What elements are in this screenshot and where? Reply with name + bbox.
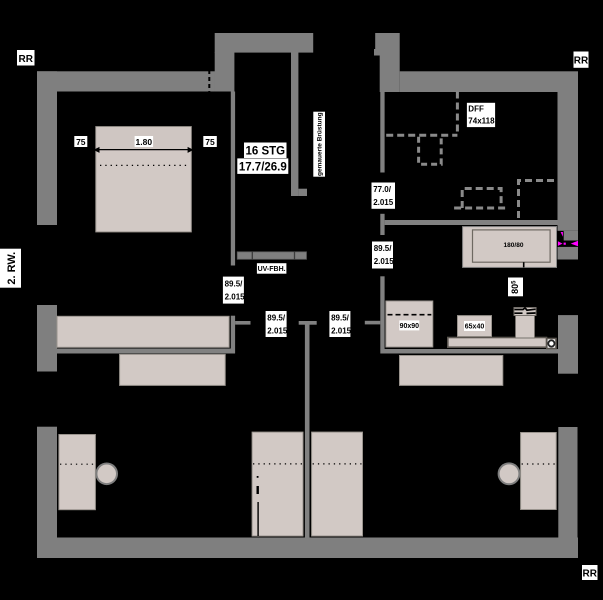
svg-text:77.0/: 77.0/ <box>373 185 392 194</box>
svg-text:65x40: 65x40 <box>465 324 485 331</box>
svg-text:gemauerte Brüstung: gemauerte Brüstung <box>317 112 324 176</box>
svg-text:2. RW.: 2. RW. <box>6 252 18 285</box>
svg-text:89.5/: 89.5/ <box>225 279 244 288</box>
svg-text:90x90: 90x90 <box>400 323 420 330</box>
svg-text:89.5/: 89.5/ <box>267 314 286 323</box>
svg-text:17.7/26.9: 17.7/26.9 <box>239 161 287 173</box>
svg-text:75: 75 <box>205 137 215 147</box>
svg-text:2.015: 2.015 <box>267 327 288 336</box>
svg-text:RR: RR <box>574 56 589 67</box>
svg-text:74x118: 74x118 <box>468 116 495 125</box>
svg-text:RR: RR <box>582 569 597 580</box>
svg-text:89.5/: 89.5/ <box>374 244 393 253</box>
svg-text:2.015: 2.015 <box>374 257 395 266</box>
svg-text:2.015: 2.015 <box>331 327 352 336</box>
svg-text:DFF: DFF <box>468 104 484 113</box>
svg-text:2.015: 2.015 <box>373 198 394 207</box>
svg-text:16 STG: 16 STG <box>245 146 285 158</box>
svg-text:1.80: 1.80 <box>136 137 153 147</box>
svg-text:UV-FBH.: UV-FBH. <box>258 266 286 273</box>
svg-text:RR: RR <box>18 54 33 65</box>
svg-text:75: 75 <box>76 137 86 147</box>
svg-text:89.5/: 89.5/ <box>331 314 350 323</box>
svg-text:2.015: 2.015 <box>225 292 246 301</box>
svg-text:180/80: 180/80 <box>504 242 524 249</box>
